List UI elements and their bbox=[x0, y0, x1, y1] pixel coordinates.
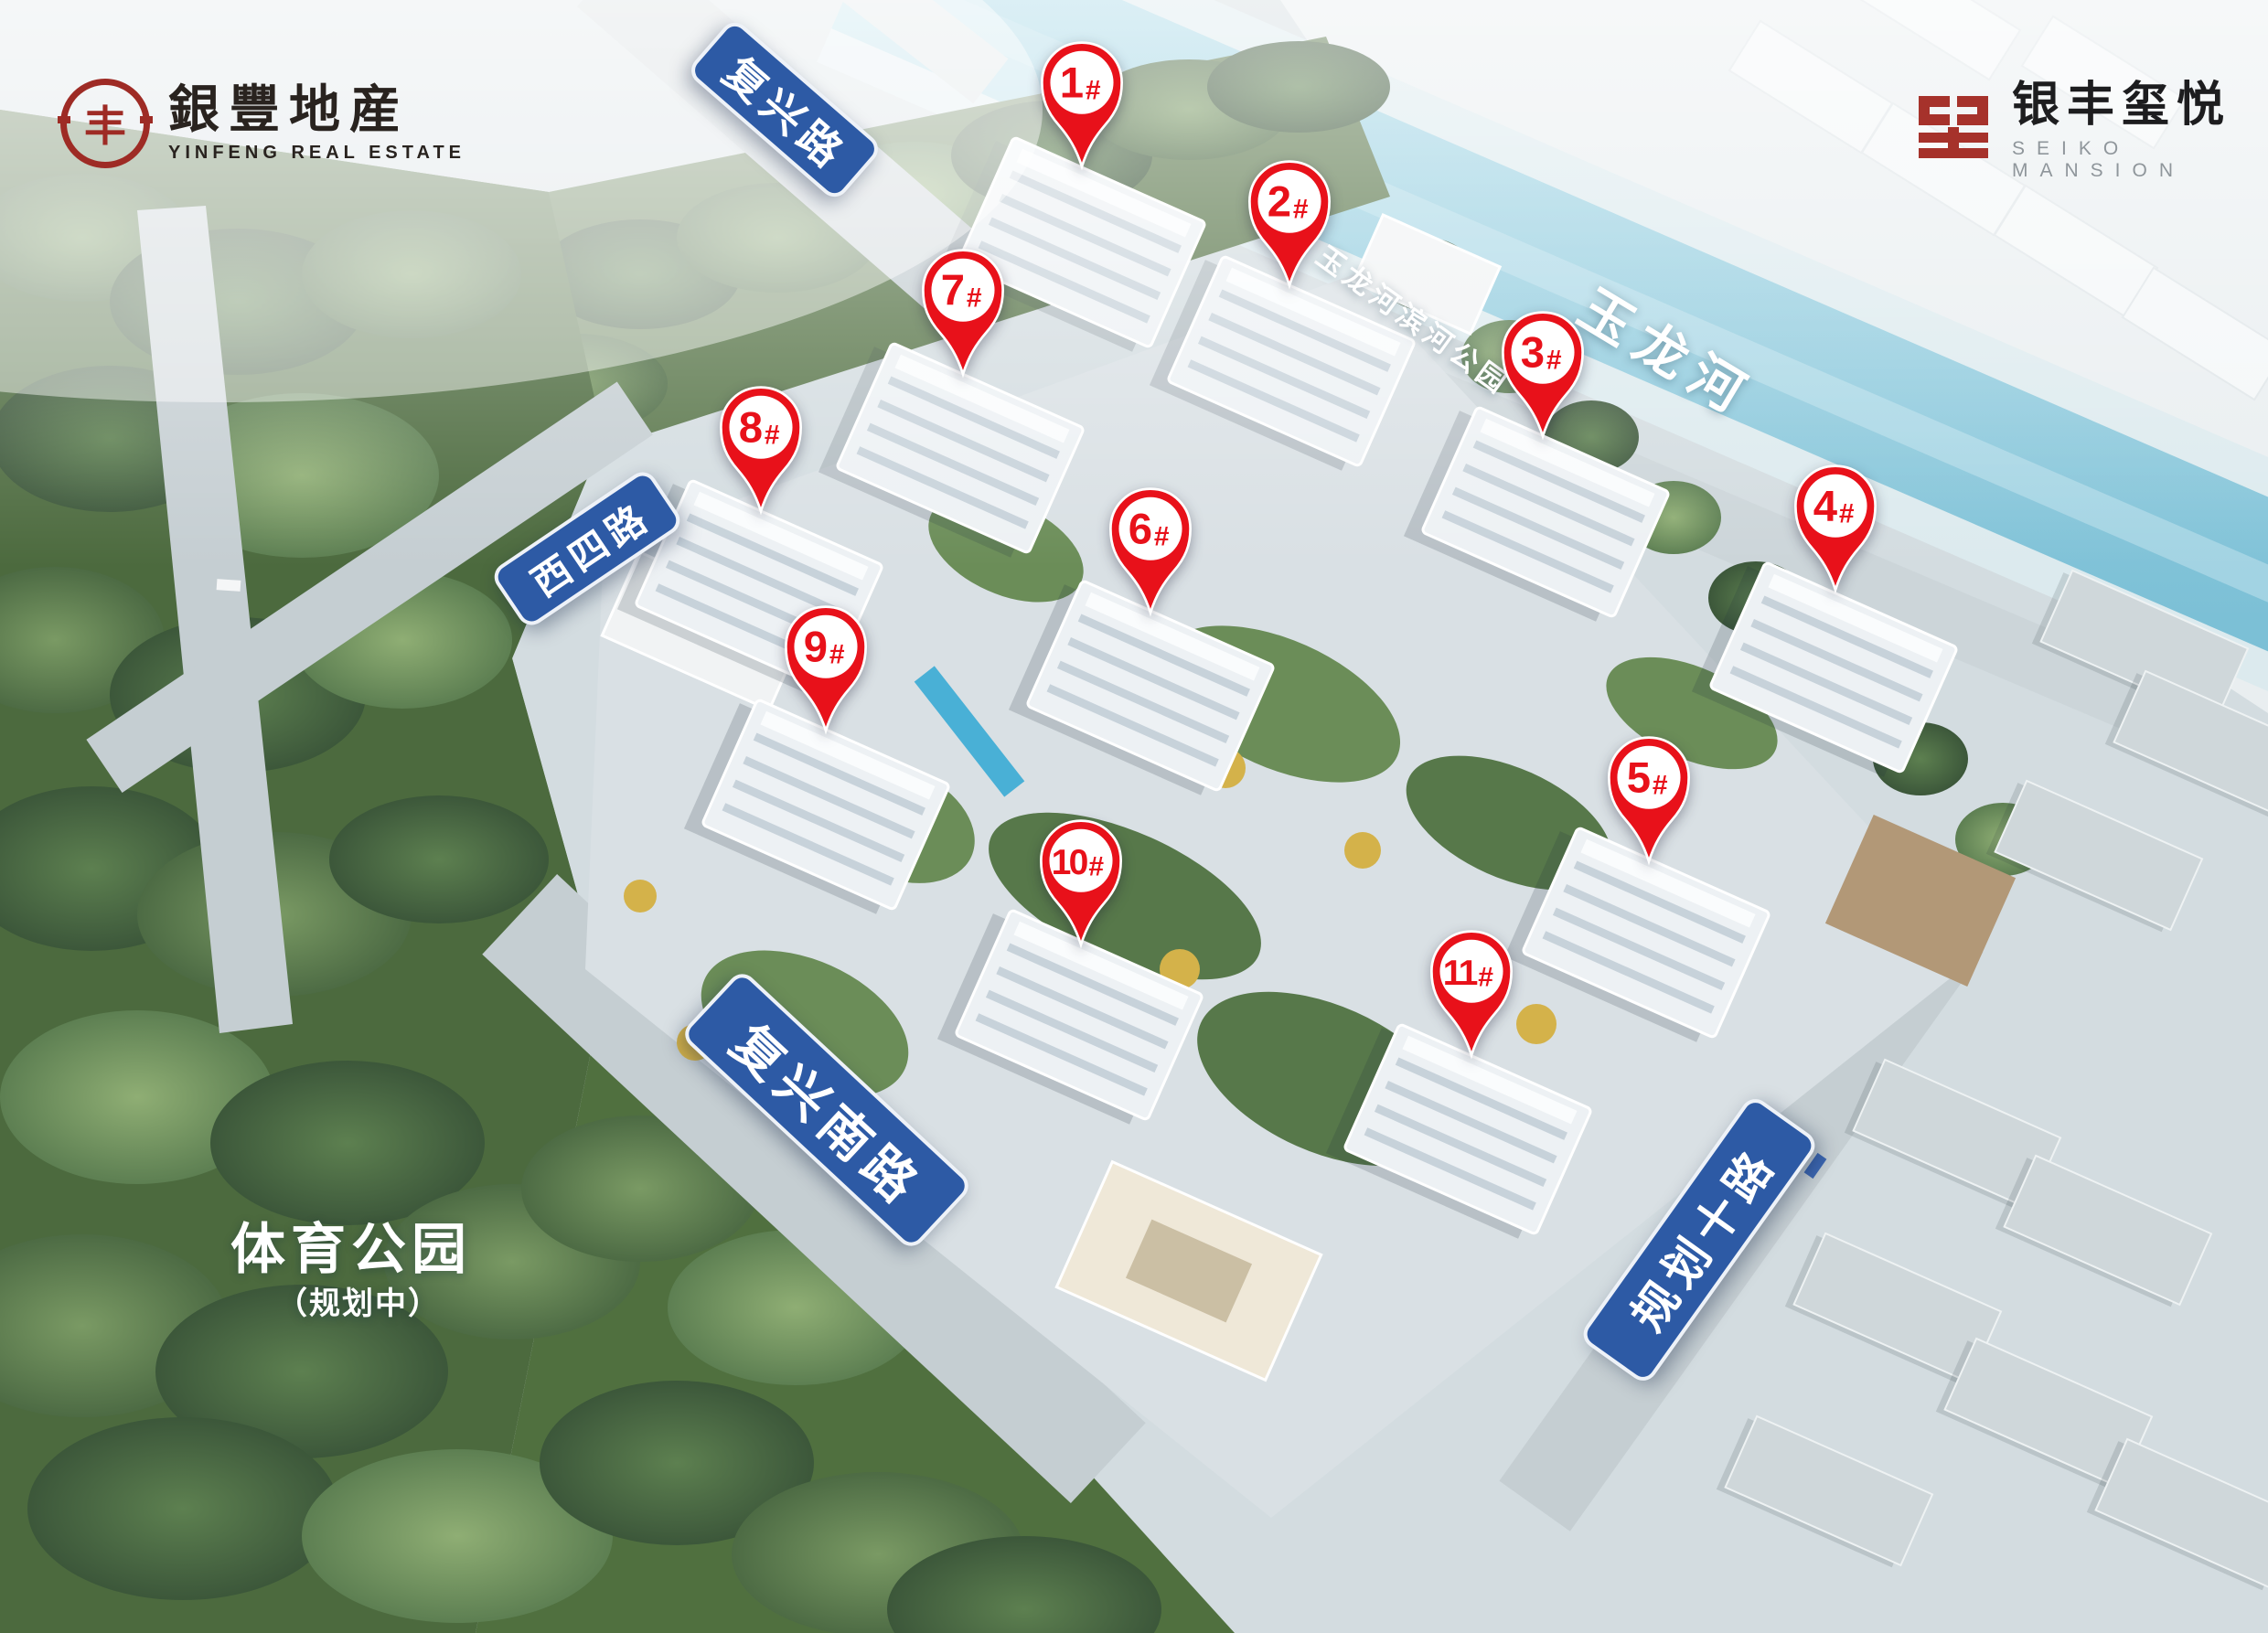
building-marker-2[interactable]: 2# bbox=[1244, 158, 1335, 290]
building-marker-5[interactable]: 5# bbox=[1603, 734, 1695, 866]
building-marker-11[interactable]: 11# bbox=[1426, 928, 1517, 1060]
yinfeng-seal-icon: 丰 bbox=[60, 79, 150, 168]
yinfeng-name-cn: 銀豐地産 bbox=[168, 83, 465, 137]
yinfeng-name-en: YINFENG REAL ESTATE bbox=[168, 143, 465, 164]
seiko-mansion-logo-mark-icon bbox=[1913, 91, 1994, 171]
yinfeng-seal-glyph: 丰 bbox=[84, 93, 126, 154]
sports-park-label: 体育公园 bbox=[230, 1205, 472, 1285]
seiko-mansion-logo: 银丰玺悦 SEIKO MANSION bbox=[1913, 80, 2268, 182]
project-name-en: SEIKO MANSION bbox=[2012, 138, 2268, 182]
aerial-masterplan-poster: 丰 銀豐地産 YINFENG REAL ESTATE 银丰玺悦 SEIKO MA… bbox=[0, 0, 2268, 1633]
project-name-cn: 银丰玺悦 bbox=[2012, 80, 2268, 131]
building-marker-10[interactable]: 10# bbox=[1035, 817, 1127, 949]
sports-park-note-label: （规划中） bbox=[276, 1278, 441, 1323]
building-marker-1[interactable]: 1# bbox=[1036, 39, 1128, 171]
building-marker-7[interactable]: 7# bbox=[917, 247, 1009, 379]
building-marker-3[interactable]: 3# bbox=[1497, 309, 1589, 441]
building-marker-4[interactable]: 4# bbox=[1790, 463, 1881, 594]
building-marker-8[interactable]: 8# bbox=[715, 384, 807, 516]
building-marker-6[interactable]: 6# bbox=[1105, 486, 1196, 617]
site-aerial-rendering bbox=[0, 0, 2268, 1633]
yinfeng-logo: 丰 銀豐地産 YINFENG REAL ESTATE bbox=[60, 79, 465, 168]
building-marker-9[interactable]: 9# bbox=[780, 603, 872, 735]
